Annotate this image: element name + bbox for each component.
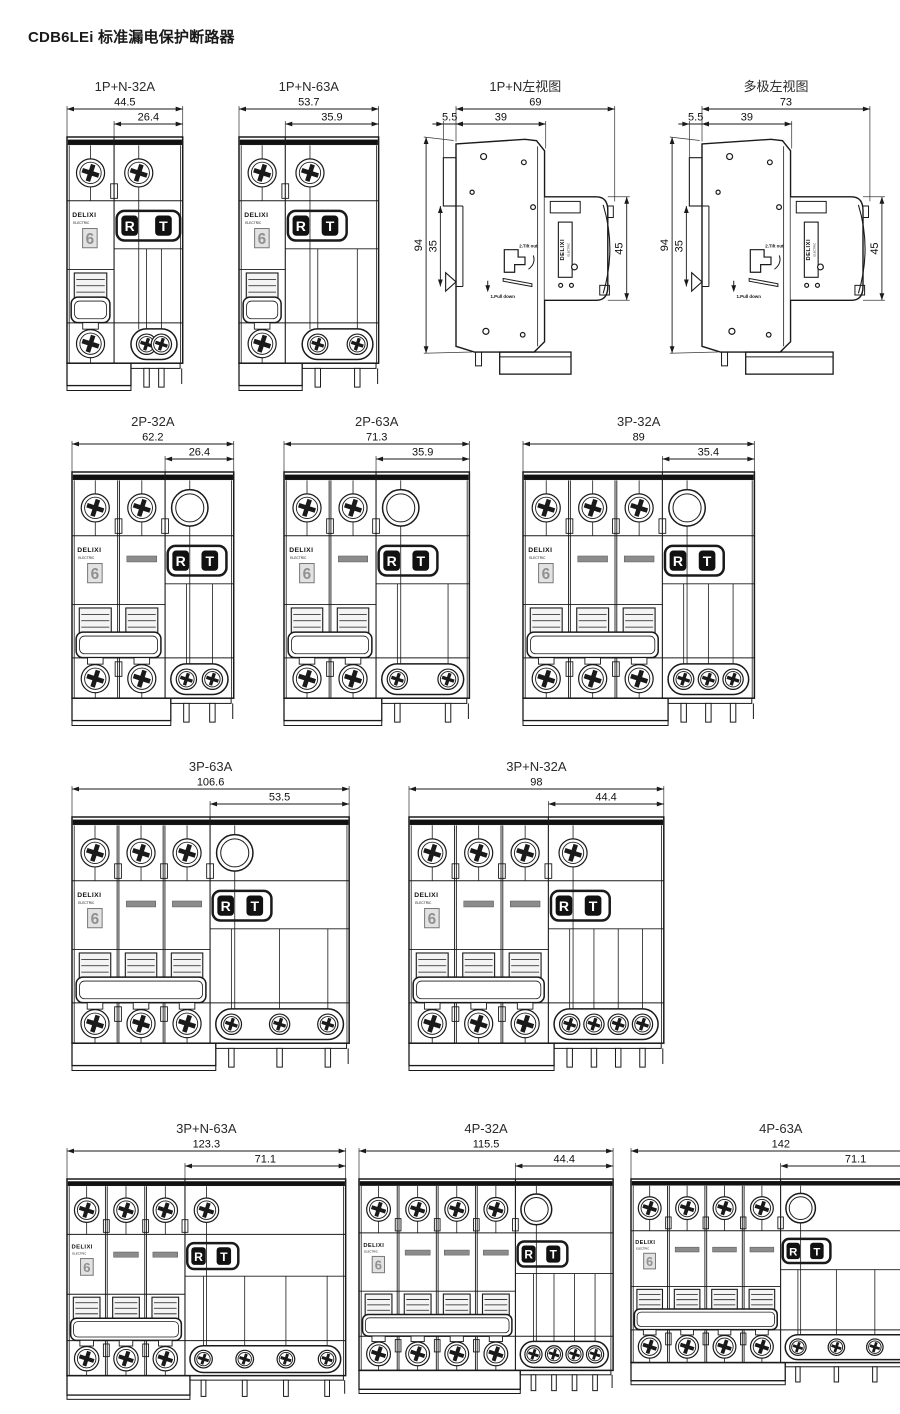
dimension-label: 35.9 (412, 447, 433, 459)
reset-button-label: R (559, 898, 569, 914)
reset-button-label: R (673, 553, 683, 569)
figure-title: 3P+N-32A (402, 758, 671, 775)
dimension-label: 69 (529, 97, 541, 109)
reset-button-label: R (176, 553, 186, 569)
figure-title: 3P+N-63A (60, 1120, 353, 1137)
brand-sub-label: ELECTRIC (529, 556, 546, 560)
figure-4p-63a: 4P-63A 14271.1DELIXIELECTRIC6RT (624, 1120, 900, 1394)
dimension-label: 98 (530, 777, 542, 789)
brand-sub-label: ELECTRIC (415, 901, 432, 905)
page-title: CDB6LEi 标准漏电保护断路器 (28, 26, 235, 47)
figure-3pn-32a: 3P+N-32A 9844.4DELIXIELECTRIC6RT (402, 758, 671, 1080)
breaker-front-drawing: 71.335.9DELIXIELECTRIC6RT (277, 432, 476, 735)
dimension-label: 5.5 (442, 112, 457, 124)
test-button-label: T (416, 553, 425, 569)
breaker-front-svg: 62.226.4DELIXIELECTRIC6RT (65, 432, 241, 735)
brand-label: DELIXI (72, 212, 96, 219)
brand-sub-label: ELECTRIC (72, 1251, 86, 1255)
dimension-label: 115.5 (473, 1139, 500, 1151)
figure-3pn-63a: 3P+N-63A 123.371.1DELIXIELECTRIC6RT (60, 1120, 353, 1408)
dimension-label: 62.2 (142, 432, 163, 444)
brand-label: DELIXI (77, 547, 101, 554)
breaker-side-svg: 695.539943545DELIXIELECTRIC2.Tilt out1.P… (410, 97, 641, 382)
rating-label: 6 (375, 1258, 382, 1273)
reset-button-label: R (125, 218, 135, 234)
dimension-label: 39 (741, 112, 753, 124)
breaker-front-drawing: 9844.4DELIXIELECTRIC6RT (402, 777, 671, 1080)
test-button-label: T (326, 218, 335, 234)
dimension-label: 71.1 (845, 1154, 866, 1166)
dimension-label: 71.1 (255, 1154, 276, 1166)
figure-title: 2P-32A (65, 413, 241, 430)
annotation-tilt-out: 2.Tilt out (765, 243, 784, 248)
breaker-front-drawing: 106.653.5DELIXIELECTRIC6RT (65, 777, 356, 1080)
figure-title: 4P-63A (624, 1120, 900, 1137)
dimension-label: 26.4 (189, 447, 210, 459)
reset-button-label: R (221, 898, 231, 914)
dimension-label: 53.5 (269, 792, 290, 804)
dimension-label: 44.4 (595, 792, 616, 804)
brand-label: DELIXI (244, 212, 268, 219)
breaker-front-svg: 123.371.1DELIXIELECTRIC6RT (60, 1139, 353, 1408)
brand-sub-label: ELECTRIC (78, 556, 95, 560)
annotation-pull-down: 1.Pull down (737, 294, 762, 299)
rating-label: 6 (86, 231, 95, 248)
figure-multipole-side-view: 多极左视图 735.539943545DELIXIELECTRIC2.Tilt … (656, 78, 896, 382)
dimension-label: 106.6 (197, 777, 225, 789)
test-button-label: T (703, 553, 712, 569)
brand-label: DELIXI (528, 547, 552, 554)
rating-label: 6 (258, 231, 267, 248)
dimension-label: 94 (659, 239, 671, 251)
brand-label: DELIXI (414, 892, 438, 899)
figure-title: 1P+N-32A (60, 78, 190, 95)
reset-button-label: R (194, 1250, 203, 1264)
breaker-front-svg: 14271.1DELIXIELECTRIC6RT (624, 1139, 900, 1394)
brand-sub-label: ELECTRIC (812, 243, 816, 257)
dimension-label: 73 (780, 97, 792, 109)
breaker-front-drawing: 53.735.9DELIXIELECTRIC6RT (232, 97, 386, 400)
reset-button-label: R (387, 553, 397, 569)
test-button-label: T (159, 218, 168, 234)
dimension-label: 35.4 (698, 447, 719, 459)
breaker-front-drawing: 115.544.4DELIXIELECTRIC6RT (352, 1139, 620, 1403)
figure-1pn-side-view: 1P+N左视图 695.539943545DELIXIELECTRIC2.Til… (410, 78, 641, 382)
breaker-front-drawing: 123.371.1DELIXIELECTRIC6RT (60, 1139, 353, 1408)
test-button-label: T (220, 1250, 228, 1264)
figure-3p-32a: 3P-32A 8935.4DELIXIELECTRIC6RT (516, 413, 761, 735)
reset-button-label: R (524, 1248, 533, 1262)
figure-title: 2P-63A (277, 413, 476, 430)
brand-sub-label: ELECTRIC (245, 221, 262, 225)
dimension-label: 35.9 (321, 112, 342, 124)
rating-label: 6 (303, 566, 312, 583)
breaker-front-svg: 44.526.4DELIXIELECTRIC6RT (60, 97, 190, 400)
dimension-label: 5.5 (688, 112, 703, 124)
annotation-tilt-out: 2.Tilt out (519, 243, 538, 248)
figure-title: 3P-63A (65, 758, 356, 775)
figure-title: 3P-32A (516, 413, 761, 430)
breaker-front-drawing: 14271.1DELIXIELECTRIC6RT (624, 1139, 900, 1394)
dimension-label: 45 (869, 242, 881, 254)
dimension-label: 123.3 (193, 1139, 221, 1151)
test-button-label: T (813, 1246, 820, 1258)
dimension-label: 53.7 (298, 97, 319, 109)
brand-sub-label: ELECTRIC (364, 1249, 378, 1253)
brand-sub-label: ELECTRIC (78, 901, 95, 905)
brand-label: DELIXI (77, 892, 101, 899)
dimension-label: 26.4 (138, 112, 159, 124)
rating-label: 6 (542, 566, 551, 583)
breaker-side-drawing: 735.539943545DELIXIELECTRIC2.Tilt out1.P… (656, 97, 896, 382)
figure-title: 1P+N-63A (232, 78, 386, 95)
test-button-label: T (250, 898, 259, 914)
figure-3p-63a: 3P-63A 106.653.5DELIXIELECTRIC6RT (65, 758, 356, 1080)
breaker-front-svg: 8935.4DELIXIELECTRIC6RT (516, 432, 761, 735)
dimension-label: 44.5 (114, 97, 135, 109)
brand-sub-label: ELECTRIC (566, 243, 570, 257)
brand-label: DELIXI (560, 239, 566, 261)
figure-title: 1P+N左视图 (410, 78, 641, 95)
brand-label: DELIXI (363, 1243, 384, 1249)
dimension-label: 35 (427, 240, 439, 252)
brand-sub-label: ELECTRIC (636, 1246, 649, 1250)
rating-label: 6 (91, 911, 100, 928)
figure-2p-32a: 2P-32A 62.226.4DELIXIELECTRIC6RT (65, 413, 241, 735)
figure-1pn-63a: 1P+N-63A 53.735.9DELIXIELECTRIC6RT (232, 78, 386, 400)
breaker-front-svg: 106.653.5DELIXIELECTRIC6RT (65, 777, 356, 1080)
dimension-label: 35 (673, 240, 685, 252)
breaker-front-svg: 9844.4DELIXIELECTRIC6RT (402, 777, 671, 1080)
brand-sub-label: ELECTRIC (73, 221, 90, 225)
brand-label: DELIXI (289, 547, 313, 554)
rating-label: 6 (428, 911, 437, 928)
figure-1pn-32a: 1P+N-32A 44.526.4DELIXIELECTRIC6RT (60, 78, 190, 400)
brand-label: DELIXI (72, 1245, 93, 1251)
rating-label: 6 (91, 566, 100, 583)
breaker-front-drawing: 44.526.4DELIXIELECTRIC6RT (60, 97, 190, 400)
breaker-front-svg: 71.335.9DELIXIELECTRIC6RT (277, 432, 476, 735)
annotation-pull-down: 1.Pull down (491, 294, 516, 299)
breaker-front-drawing: 62.226.4DELIXIELECTRIC6RT (65, 432, 241, 735)
dimension-label: 45 (614, 242, 626, 254)
breaker-front-svg: 115.544.4DELIXIELECTRIC6RT (352, 1139, 620, 1403)
figure-title: 多极左视图 (656, 78, 896, 95)
test-button-label: T (206, 553, 215, 569)
dimension-label: 39 (495, 112, 507, 124)
figure-title: 4P-32A (352, 1120, 620, 1137)
reset-button-label: R (296, 218, 306, 234)
brand-label: DELIXI (635, 1240, 655, 1246)
dimension-label: 71.3 (366, 432, 387, 444)
datasheet-page: { "page": { "title": "CDB6LEi 标准漏电保护断路器"… (0, 0, 900, 1414)
reset-button-label: R (789, 1246, 797, 1258)
test-button-label: T (589, 898, 598, 914)
dimension-label: 94 (413, 239, 425, 251)
brand-sub-label: ELECTRIC (290, 556, 307, 560)
dimension-label: 44.4 (554, 1154, 575, 1166)
figure-2p-63a: 2P-63A 71.335.9DELIXIELECTRIC6RT (277, 413, 476, 735)
breaker-front-drawing: 8935.4DELIXIELECTRIC6RT (516, 432, 761, 735)
breaker-side-drawing: 695.539943545DELIXIELECTRIC2.Tilt out1.P… (410, 97, 641, 382)
dimension-label: 142 (772, 1139, 790, 1151)
dimension-label: 89 (633, 432, 645, 444)
breaker-front-svg: 53.735.9DELIXIELECTRIC6RT (232, 97, 386, 400)
rating-label: 6 (646, 1255, 653, 1269)
breaker-side-svg: 735.539943545DELIXIELECTRIC2.Tilt out1.P… (656, 97, 896, 382)
test-button-label: T (550, 1248, 558, 1262)
figure-4p-32a: 4P-32A 115.544.4DELIXIELECTRIC6RT (352, 1120, 620, 1403)
rating-label: 6 (83, 1260, 90, 1275)
brand-label: DELIXI (806, 239, 812, 261)
